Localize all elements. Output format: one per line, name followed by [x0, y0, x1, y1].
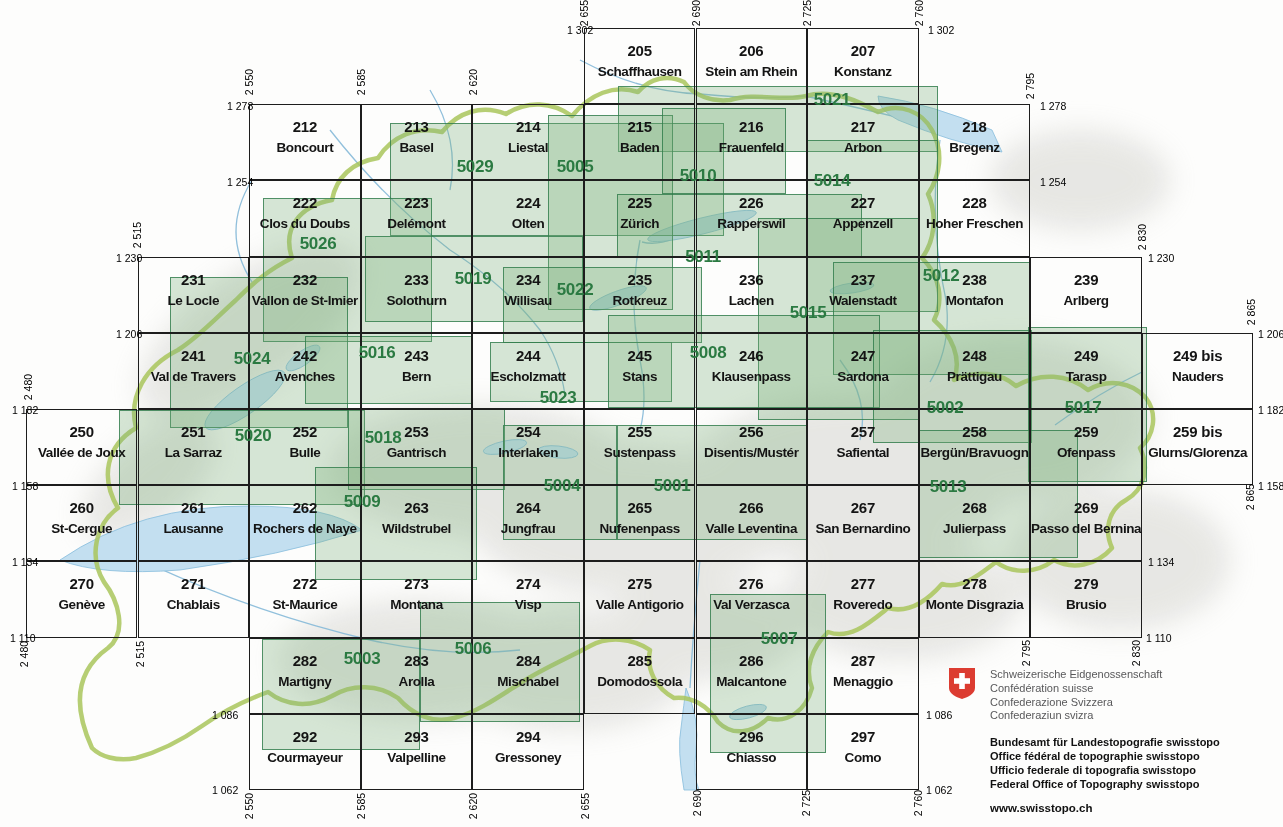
coordinate-label-right-1-110: 1 110 [1146, 632, 1172, 644]
confederation-line-rm: Confederaziun svizra [990, 709, 1162, 723]
coordinate-label-left-1-086: 1 086 [212, 709, 238, 721]
coordinate-label-top-2-515: 2 515 [131, 222, 143, 248]
coordinate-label-right-1-206: 1 206 [1258, 328, 1283, 340]
swisstopo-url[interactable]: www.swisstopo.ch [990, 802, 1283, 814]
coordinate-label-top-2-620: 2 620 [467, 69, 479, 95]
coordinate-label-left-1-062: 1 062 [212, 784, 238, 796]
coordinate-label-right-1-158: 1 158 [1258, 480, 1283, 492]
coordinate-label-top-2-760: 2 760 [913, 0, 925, 26]
coordinate-label-left-1-230: 1 230 [116, 252, 142, 264]
federal-office-block: Bundesamt für Landestopografie swisstopo… [990, 735, 1283, 791]
coordinate-label-bottom-2-480: 2 480 [18, 641, 30, 667]
confederation-line-de: Schweizerische Eidgenossenschaft [990, 668, 1162, 682]
coordinate-label-bottom-2-760: 2 760 [912, 790, 924, 816]
map-sheet-index-page: 205Schaffhausen206Stein am Rhein207Konst… [0, 0, 1283, 827]
coordinate-label-bottom-2-830: 2 830 [1130, 640, 1142, 666]
coordinate-label-top-2-865: 2 865 [1245, 299, 1257, 325]
coordinate-label-top-2-655: 2 655 [578, 0, 590, 26]
confederation-line-it: Confederazione Svizzera [990, 696, 1162, 710]
coordinate-label-left-1-278: 1 278 [227, 100, 253, 112]
coordinate-label-top-2-585: 2 585 [355, 69, 367, 95]
coordinate-label-top-2-690: 2 690 [690, 0, 702, 26]
coordinate-label-top-2-725: 2 725 [801, 0, 813, 26]
coordinate-label-right-1-254: 1 254 [1040, 176, 1066, 188]
office-line-it: Ufficio federale di topografia swisstopo [990, 763, 1283, 777]
coordinate-label-bottom-2-655: 2 655 [579, 793, 591, 819]
coordinate-label-bottom-2-515: 2 515 [134, 641, 146, 667]
coordinate-label-right-1-182: 1 182 [1258, 404, 1283, 416]
coordinate-label-bottom-2-865: 2 865 [1244, 484, 1256, 510]
coordinate-label-right-1-134: 1 134 [1148, 556, 1174, 568]
confederation-line-fr: Confédération suisse [990, 682, 1162, 696]
coordinate-label-right-1-230: 1 230 [1148, 252, 1174, 264]
coordinate-label-right-1-302: 1 302 [928, 24, 954, 36]
coordinate-label-bottom-2-795: 2 795 [1020, 640, 1032, 666]
coordinate-label-top-2-795: 2 795 [1024, 73, 1036, 99]
coordinate-label-top-2-480: 2 480 [22, 374, 34, 400]
coordinate-label-bottom-2-725: 2 725 [800, 790, 812, 816]
office-line-de: Bundesamt für Landestopografie swisstopo [990, 735, 1283, 749]
confederation-name-block: Schweizerische Eidgenossenschaft Confédé… [990, 668, 1162, 723]
coordinate-label-left-1-254: 1 254 [227, 176, 253, 188]
coordinate-label-top-2-550: 2 550 [243, 69, 255, 95]
coordinate-label-left-1-206: 1 206 [116, 328, 142, 340]
coordinate-label-left-1-158: 1 158 [12, 480, 38, 492]
swiss-federal-branding: Schweizerische Eidgenossenschaft Confédé… [948, 668, 1283, 814]
swiss-coat-of-arms-icon [948, 668, 976, 700]
coordinate-label-right-1-278: 1 278 [1040, 100, 1066, 112]
coordinate-label-bottom-2-620: 2 620 [467, 793, 479, 819]
coordinate-label-bottom-2-585: 2 585 [355, 793, 367, 819]
coordinate-label-top-2-830: 2 830 [1136, 224, 1148, 250]
office-line-en: Federal Office of Topography swisstopo [990, 777, 1283, 791]
coordinate-label-bottom-2-690: 2 690 [691, 790, 703, 816]
coordinate-label-bottom-2-550: 2 550 [243, 793, 255, 819]
coordinate-label-left-1-134: 1 134 [12, 556, 38, 568]
office-line-fr: Office fédéral de topographie swisstopo [990, 749, 1283, 763]
coordinate-label-left-1-182: 1 182 [12, 404, 38, 416]
